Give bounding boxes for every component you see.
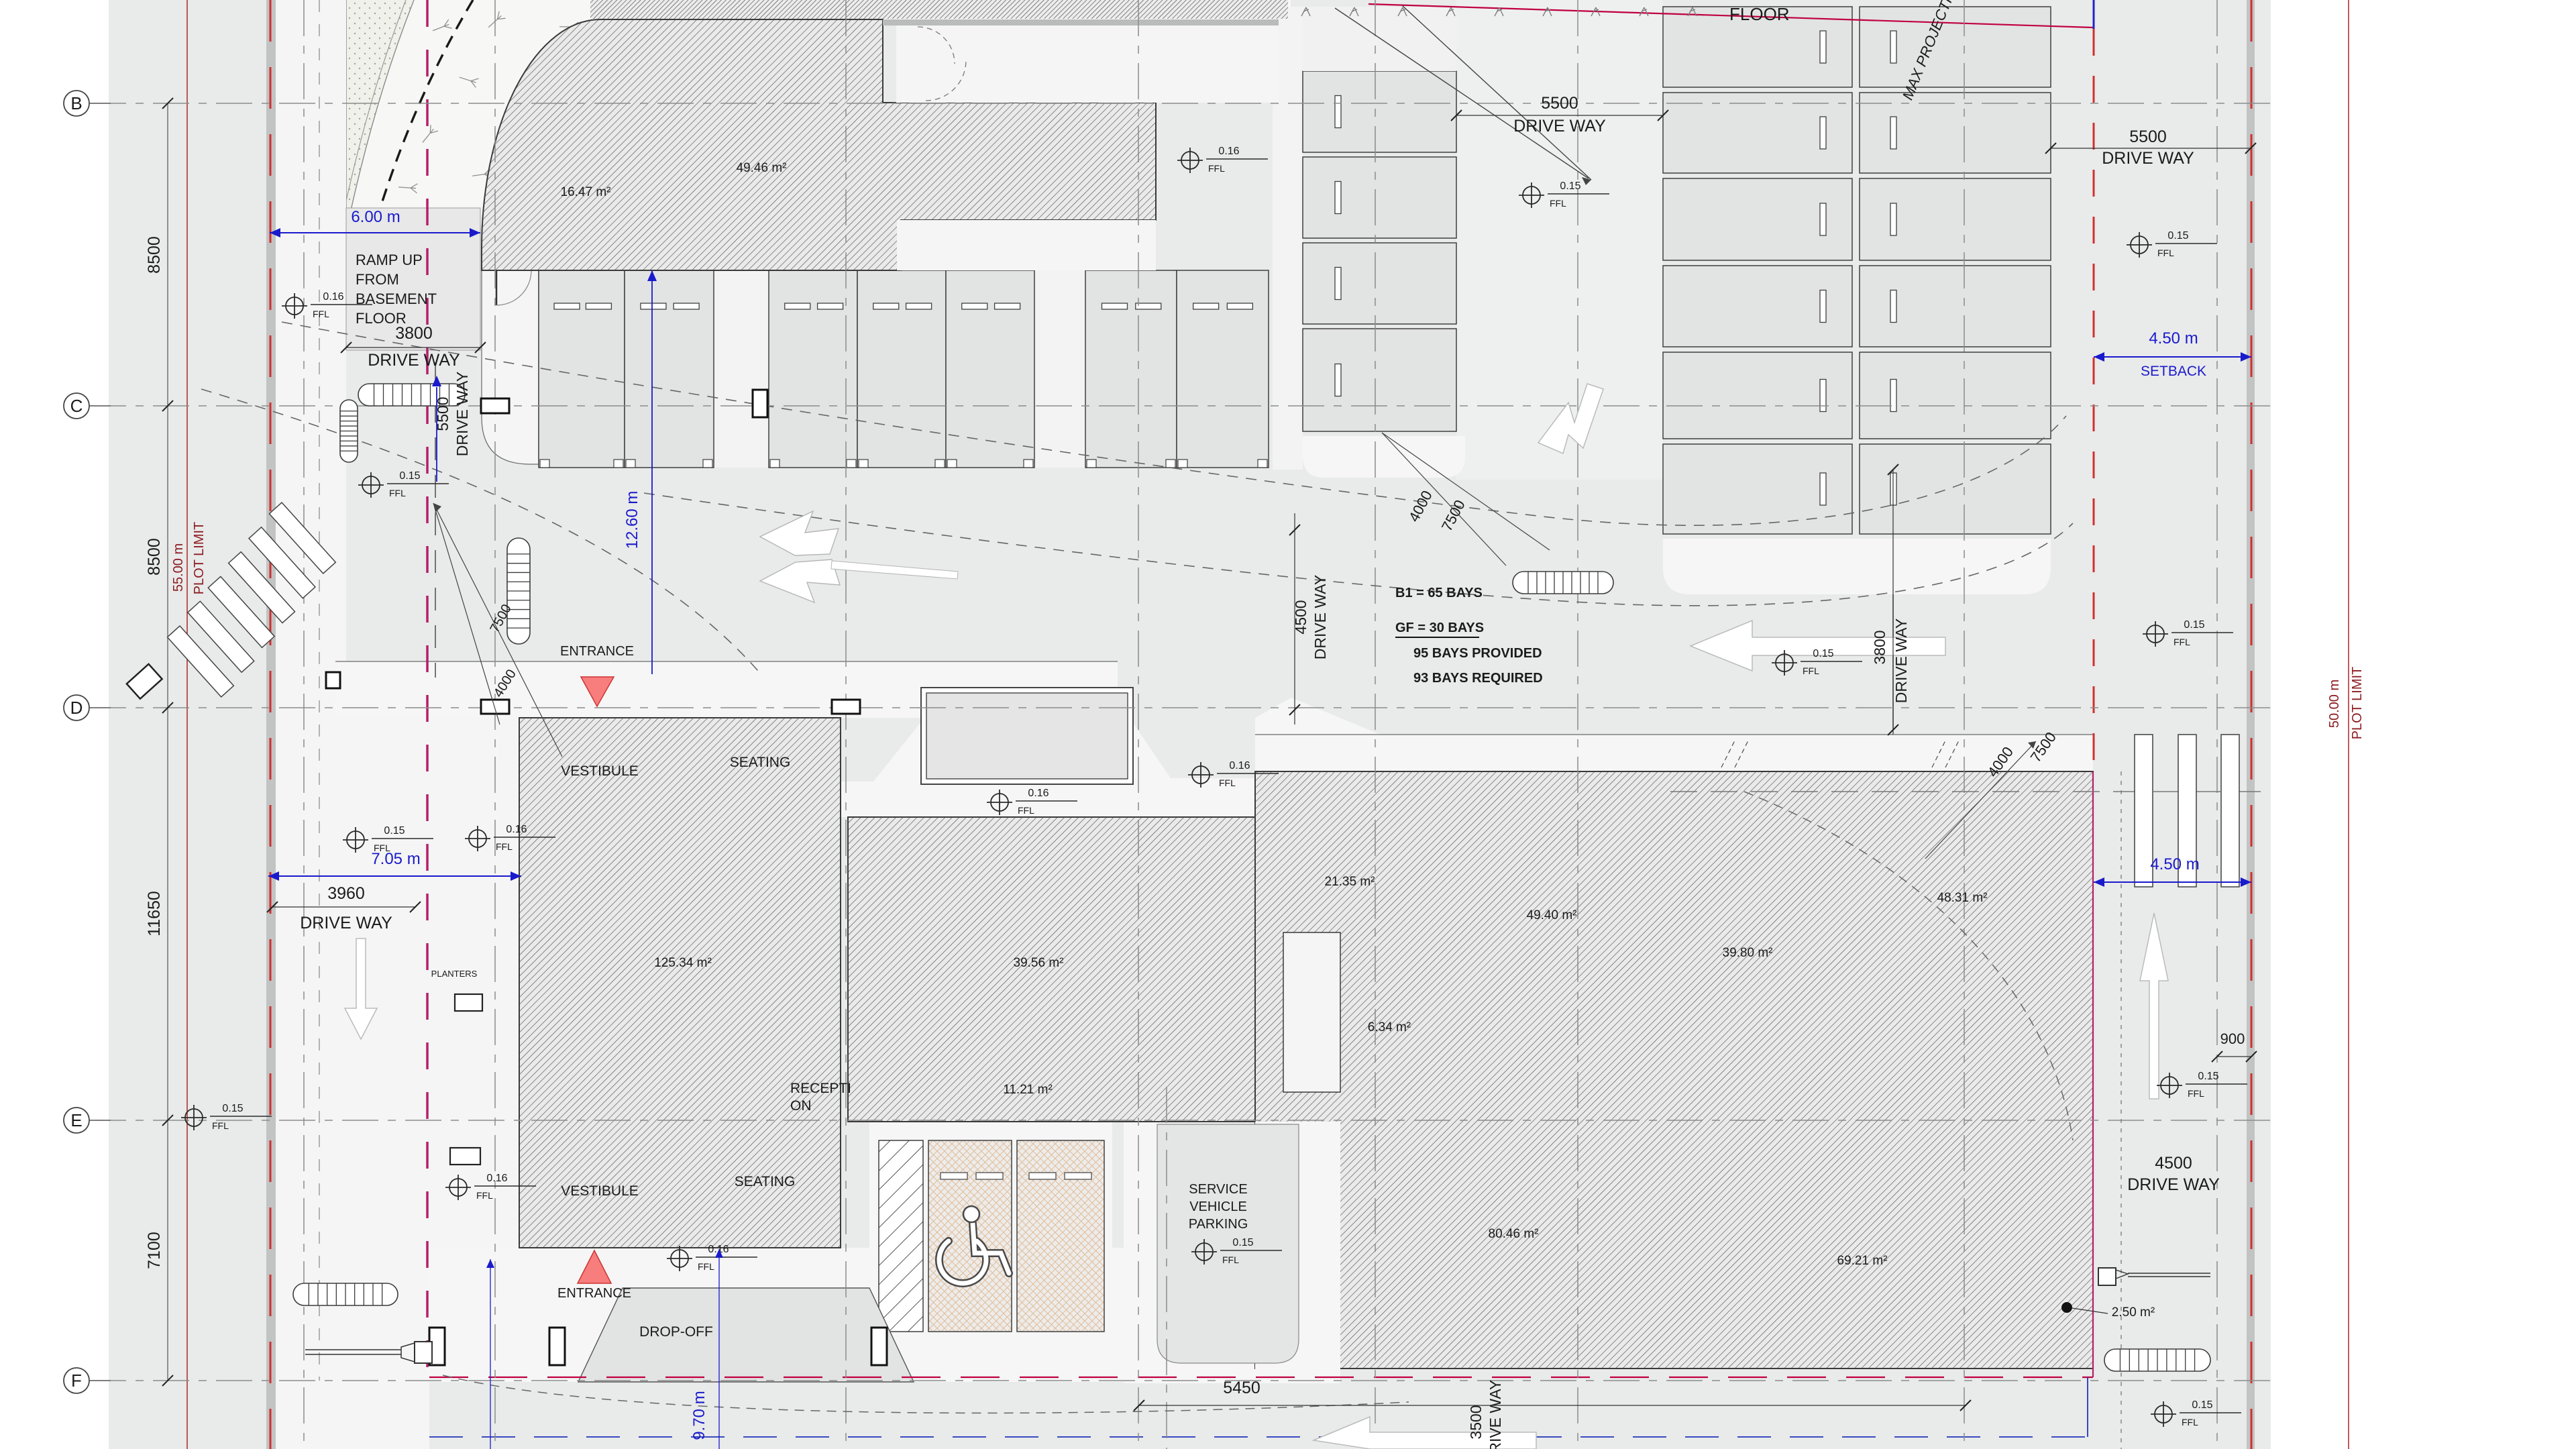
svg-text:0.15: 0.15 <box>2198 1071 2218 1082</box>
svg-text:125.34 m²: 125.34 m² <box>654 956 712 970</box>
svg-text:11650: 11650 <box>145 891 164 936</box>
svg-text:39.56 m²: 39.56 m² <box>1014 956 1064 970</box>
svg-text:0.15: 0.15 <box>399 470 420 482</box>
svg-text:DRIVE WAY: DRIVE WAY <box>2127 1175 2220 1194</box>
svg-text:48.31 m²: 48.31 m² <box>1937 891 1988 905</box>
svg-text:0.16: 0.16 <box>323 291 343 303</box>
svg-text:DRIVE WAY: DRIVE WAY <box>1513 117 1606 136</box>
svg-text:0.16: 0.16 <box>1229 760 1250 771</box>
svg-text:0.15: 0.15 <box>2184 619 2204 631</box>
svg-text:FFL: FFL <box>2173 637 2190 647</box>
svg-text:F: F <box>71 1371 82 1391</box>
svg-text:8500: 8500 <box>145 236 164 274</box>
svg-text:93 BAYS REQUIRED: 93 BAYS REQUIRED <box>1413 671 1543 686</box>
svg-text:RAMP UP: RAMP UP <box>356 252 423 268</box>
svg-text:DRIVE WAY: DRIVE WAY <box>300 914 392 932</box>
svg-text:7100: 7100 <box>145 1232 164 1269</box>
svg-text:0.15: 0.15 <box>384 825 405 837</box>
svg-text:11.21 m²: 11.21 m² <box>1003 1083 1053 1097</box>
svg-text:FFL: FFL <box>1222 1254 1239 1265</box>
svg-text:PLOT LIMIT: PLOT LIMIT <box>192 522 207 595</box>
svg-text:50.00 m: 50.00 m <box>2327 680 2342 728</box>
svg-text:FLOOR: FLOOR <box>1729 4 1790 24</box>
svg-text:16.47 m²: 16.47 m² <box>561 185 611 199</box>
svg-text:9.70 m: 9.70 m <box>690 1391 708 1440</box>
svg-text:3800: 3800 <box>1871 630 1888 664</box>
svg-text:GF = 30 BAYS: GF = 30 BAYS <box>1395 621 1484 635</box>
svg-text:FFL: FFL <box>2157 248 2174 258</box>
svg-text:FLOOR: FLOOR <box>356 310 407 327</box>
svg-text:FFL: FFL <box>2188 1088 2204 1099</box>
svg-text:FFL: FFL <box>1550 198 1566 209</box>
svg-text:PLANTERS: PLANTERS <box>431 969 478 979</box>
svg-text:0.16: 0.16 <box>1028 788 1049 799</box>
svg-text:DRIVE WAY: DRIVE WAY <box>1311 575 1329 660</box>
svg-text:0.16: 0.16 <box>1218 146 1239 157</box>
svg-text:DRIVE WAY: DRIVE WAY <box>1487 1380 1504 1449</box>
svg-text:DROP-OFF: DROP-OFF <box>639 1324 713 1340</box>
svg-text:PLOT LIMIT: PLOT LIMIT <box>2350 667 2365 740</box>
svg-text:4500: 4500 <box>2155 1154 2192 1173</box>
svg-text:0.15: 0.15 <box>2167 230 2188 241</box>
svg-text:8500: 8500 <box>145 538 164 576</box>
svg-text:4.50 m: 4.50 m <box>2149 329 2198 347</box>
svg-text:B: B <box>70 93 82 113</box>
svg-text:49.46 m²: 49.46 m² <box>737 161 787 175</box>
svg-text:ENTRANCE: ENTRANCE <box>560 644 634 659</box>
svg-text:DRIVE WAY: DRIVE WAY <box>453 372 471 457</box>
svg-text:0.15: 0.15 <box>1232 1237 1253 1248</box>
svg-text:FFL: FFL <box>313 309 329 319</box>
svg-text:DRIVE WAY: DRIVE WAY <box>1892 619 1910 704</box>
svg-text:FFL: FFL <box>698 1261 714 1272</box>
svg-text:7.05 m: 7.05 m <box>371 850 420 868</box>
svg-text:39.80 m²: 39.80 m² <box>1723 946 1773 960</box>
svg-text:DRIVE WAY: DRIVE WAY <box>368 351 460 370</box>
svg-text:FFL: FFL <box>476 1190 493 1201</box>
svg-text:69.21 m²: 69.21 m² <box>1837 1254 1888 1268</box>
svg-text:D: D <box>70 698 83 718</box>
svg-text:2.50 m²: 2.50 m² <box>2112 1305 2155 1320</box>
svg-text:6.00 m: 6.00 m <box>351 208 400 226</box>
svg-text:DRIVE WAY: DRIVE WAY <box>2102 149 2194 168</box>
svg-text:0.15: 0.15 <box>1560 180 1580 192</box>
svg-text:BASEMENT: BASEMENT <box>356 290 437 307</box>
svg-text:3800: 3800 <box>395 324 433 343</box>
svg-text:FFL: FFL <box>2182 1417 2198 1428</box>
svg-text:SETBACK: SETBACK <box>2141 364 2206 379</box>
svg-text:0.16: 0.16 <box>506 824 527 835</box>
svg-text:21.35 m²: 21.35 m² <box>1325 875 1375 889</box>
svg-text:0.15: 0.15 <box>1813 648 1833 659</box>
svg-text:PARKING: PARKING <box>1189 1217 1248 1232</box>
svg-text:0.15: 0.15 <box>2192 1399 2212 1411</box>
svg-text:5500: 5500 <box>434 396 451 431</box>
svg-text:5500: 5500 <box>1541 94 1578 113</box>
svg-text:3500: 3500 <box>1467 1405 1485 1439</box>
svg-text:RECEPTI: RECEPTI <box>790 1081 851 1096</box>
svg-text:FFL: FFL <box>496 841 513 852</box>
svg-text:ENTRANCE: ENTRANCE <box>557 1286 631 1301</box>
svg-text:900: 900 <box>2220 1030 2245 1047</box>
svg-text:FFL: FFL <box>212 1120 229 1131</box>
svg-text:VESTIBULE: VESTIBULE <box>561 763 639 779</box>
svg-text:0.15: 0.15 <box>222 1103 243 1114</box>
svg-text:55.00 m: 55.00 m <box>171 543 186 592</box>
svg-text:5500: 5500 <box>2129 127 2167 146</box>
svg-text:C: C <box>70 396 83 416</box>
svg-text:VEHICLE: VEHICLE <box>1189 1199 1247 1214</box>
svg-text:SERVICE: SERVICE <box>1189 1182 1247 1197</box>
svg-text:5450: 5450 <box>1223 1379 1260 1397</box>
svg-text:FFL: FFL <box>1018 805 1034 816</box>
svg-text:FFL: FFL <box>1803 665 1819 676</box>
svg-text:0.16: 0.16 <box>486 1173 507 1184</box>
svg-text:SEATING: SEATING <box>735 1174 796 1189</box>
svg-text:SEATING: SEATING <box>730 755 791 770</box>
svg-text:3960: 3960 <box>327 884 365 903</box>
svg-text:FFL: FFL <box>1208 163 1225 174</box>
svg-text:95 BAYS PROVIDED: 95 BAYS PROVIDED <box>1413 646 1542 661</box>
svg-text:VESTIBULE: VESTIBULE <box>561 1183 639 1199</box>
svg-text:B1 = 65 BAYS: B1 = 65 BAYS <box>1395 586 1483 600</box>
svg-text:FFL: FFL <box>389 488 406 498</box>
svg-text:49.40 m²: 49.40 m² <box>1527 908 1577 922</box>
svg-text:80.46 m²: 80.46 m² <box>1489 1227 1539 1241</box>
svg-text:E: E <box>70 1110 82 1130</box>
svg-text:12.60 m: 12.60 m <box>623 491 641 549</box>
svg-text:6.34 m²: 6.34 m² <box>1368 1020 1411 1034</box>
svg-text:4.50 m: 4.50 m <box>2150 855 2199 873</box>
svg-text:FROM: FROM <box>356 271 399 288</box>
svg-text:ON: ON <box>790 1098 812 1114</box>
svg-text:FFL: FFL <box>1219 777 1236 788</box>
